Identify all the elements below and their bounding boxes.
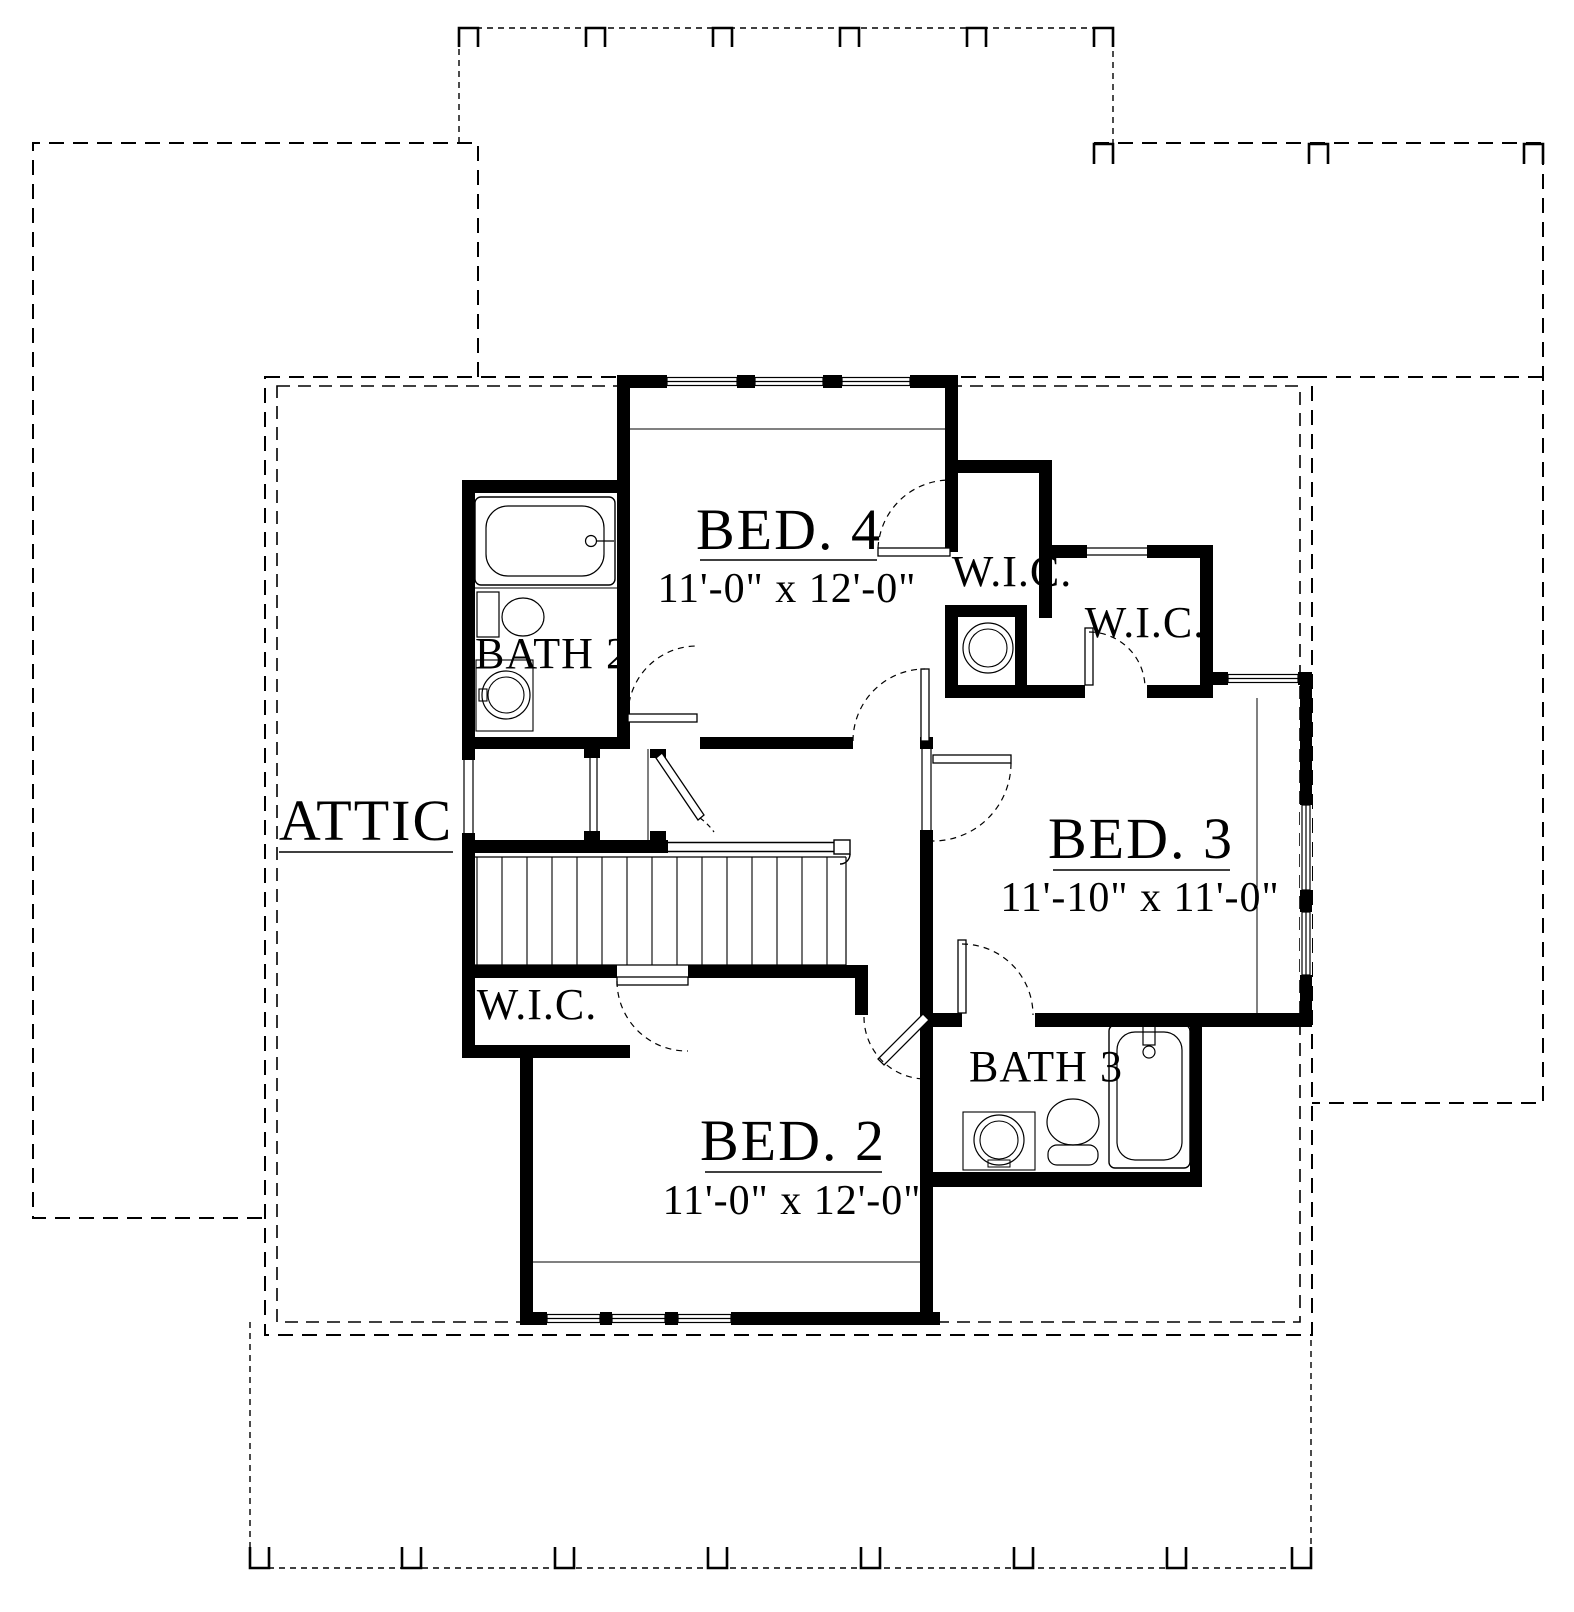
window-bed2-1 [547,1312,600,1325]
wall-stairs-top [462,840,668,853]
door-attic-hall [650,749,714,840]
wall-wic1-top [945,460,1052,473]
bottom-porch-outline [250,1322,1311,1568]
left-roof-outline [33,143,478,1218]
wall-hall-top-2 [700,737,853,749]
porch-post [1094,144,1113,164]
label-attic: ATTIC [279,788,453,853]
porch-post [967,28,986,47]
window-bed2-3 [678,1312,731,1325]
vanity-bath3 [963,1112,1035,1170]
porch-post [1292,1547,1311,1568]
porch-post [402,1547,421,1568]
wall-bed4-left [617,375,630,749]
floor-plan-drawing: BED. 4 11'-0" x 12'-0" BED. 3 11'-10" x … [0,0,1574,1612]
roof-outline [33,28,1543,1568]
window-bed4-1 [667,375,737,388]
wall-wic3-bottom-1 [1027,685,1085,698]
porch-post [861,1547,880,1568]
label-wic-bed2: W.I.C. [477,980,598,1029]
wall-bath3-bottom [933,1172,1202,1187]
porch-post [1014,1547,1033,1568]
dims-bed2: 11'-0" x 12'-0" [663,1178,922,1224]
porch-post [459,28,478,47]
wall-bed2-left [520,1058,533,1325]
label-wic-bed3: W.I.C. [1085,598,1206,647]
wall-closet-right [1015,605,1027,698]
door-bed4 [853,669,929,741]
wall-hall-top-1 [462,737,628,749]
window-bed2-2 [612,1312,665,1325]
top-porch-outline [459,28,1113,143]
label-bed2: BED. 2 [700,1108,886,1173]
wall-left-exterior-lower [462,833,475,1058]
porch-post [1094,28,1113,47]
dims-bed3: 11'-10" x 11'-0" [1000,875,1279,921]
wall-bath2-top [462,480,630,493]
stair-treads [477,857,827,965]
window-bed3-top [1228,672,1298,685]
cased-opening-wic3 [1087,545,1147,558]
window-bed4-2 [755,375,823,388]
wall-left-attic-jamb-top [462,749,475,760]
label-bath2: BATH 2 [475,629,629,678]
window-bed3-2 [1300,912,1312,975]
wall-wic2-bottom [462,1045,630,1058]
wall-stairs-bottom-1 [462,965,617,978]
door-bed3 [920,749,1011,841]
door-bath3 [958,940,1033,1015]
door-bed2 [864,1014,929,1079]
railing-return [840,854,850,864]
porch-post [555,1547,574,1568]
sink-closet [963,623,1013,673]
label-bath3: BATH 3 [969,1042,1123,1091]
wall-closet-bottom [945,685,1027,698]
label-wic-bed4: W.I.C. [952,547,1073,596]
wall-corridor-stub [855,965,868,1015]
bathtub-bath2 [475,497,617,588]
porch-post [250,1547,269,1568]
floor-plan-sheet: BED. 4 11'-0" x 12'-0" BED. 3 11'-10" x … [0,0,1574,1612]
stairs [475,840,850,965]
wall-closet-left [945,605,958,698]
label-bed4: BED. 4 [696,497,882,562]
label-bed3: BED. 3 [1048,806,1234,871]
wall-wic3-bottom-2 [1147,685,1213,698]
stair-railing [668,840,850,864]
window-bed4-3 [842,375,910,388]
porch-post [586,28,605,47]
porch-post [713,28,732,47]
hall-partition [584,749,648,840]
toilet-bath3 [1047,1099,1099,1165]
wall-bed3-bottom-1 [933,1013,962,1027]
labels: BED. 4 11'-0" x 12'-0" BED. 3 11'-10" x … [279,497,1280,1224]
wall-bed3-door-jamb [920,830,933,843]
wall-bath3-right [1190,1013,1202,1187]
window-bed3-1 [1300,805,1312,890]
wall-corridor-bed3 [920,843,933,1013]
dims-bed4: 11'-0" x 12'-0" [658,566,917,612]
door-bath2 [628,646,697,722]
wall-stairs-bottom-2 [688,965,855,978]
wall-bed2-right [920,1013,933,1325]
door-wic2 [617,977,688,1051]
porch-post [1309,144,1328,164]
cased-opening-attic [462,760,475,833]
porch-post [1524,144,1543,164]
porch-post [708,1547,727,1568]
door-wic1 [878,480,950,556]
porch-post [1167,1547,1186,1568]
porch-post [840,28,859,47]
wall-left-exterior-upper [462,480,475,750]
